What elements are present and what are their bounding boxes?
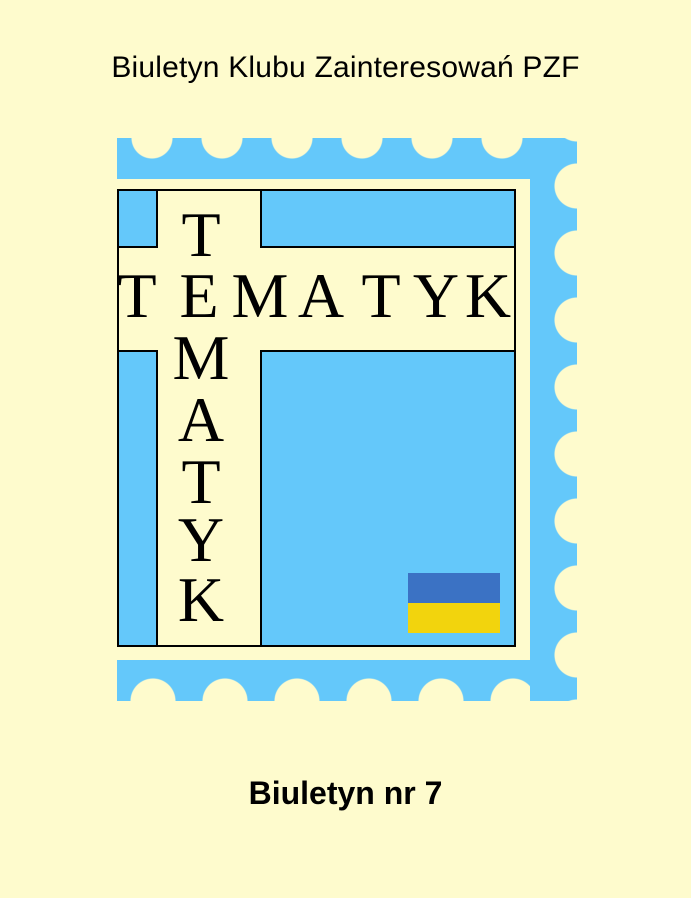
stamp-perforation-right: [530, 138, 577, 701]
stamp-letter: K: [178, 568, 224, 632]
design-block-top-left: [119, 191, 158, 248]
ukraine-flag: [408, 573, 500, 633]
stamp-perforation-bottom: [117, 660, 577, 701]
stamp-perforation-top: [117, 138, 577, 179]
bulletin-cover-page: { "header": { "title": "Biuletyn Klubu Z…: [0, 0, 691, 898]
stamp-design-panel: [117, 189, 516, 647]
stamp-letter: T: [361, 264, 400, 328]
stamp-letter: E: [179, 264, 218, 328]
design-block-bottom-left: [119, 350, 158, 645]
stamp-letter: Y: [178, 508, 224, 572]
ukraine-flag-yellow-stripe: [408, 603, 500, 633]
stamp-letter: M: [173, 326, 230, 390]
stamp-letter: T: [181, 203, 220, 267]
ukraine-flag-blue-stripe: [408, 573, 500, 603]
design-block-bottom-right: [260, 350, 514, 645]
stamp-letter: T: [117, 264, 156, 328]
tematyk-stamp-graphic: T E M A T Y K T M A T Y K: [117, 138, 577, 701]
stamp-letter: M: [232, 264, 289, 328]
stamp-letter: Y: [413, 264, 459, 328]
design-block-top-right: [260, 191, 514, 248]
stamp-letter: A: [178, 388, 224, 452]
page-title: Biuletyn Klubu Zainteresowań PZF: [0, 50, 691, 85]
stamp-letter: K: [465, 264, 511, 328]
stamp-letter: A: [298, 264, 344, 328]
issue-number-label: Biuletyn nr 7: [0, 775, 691, 811]
